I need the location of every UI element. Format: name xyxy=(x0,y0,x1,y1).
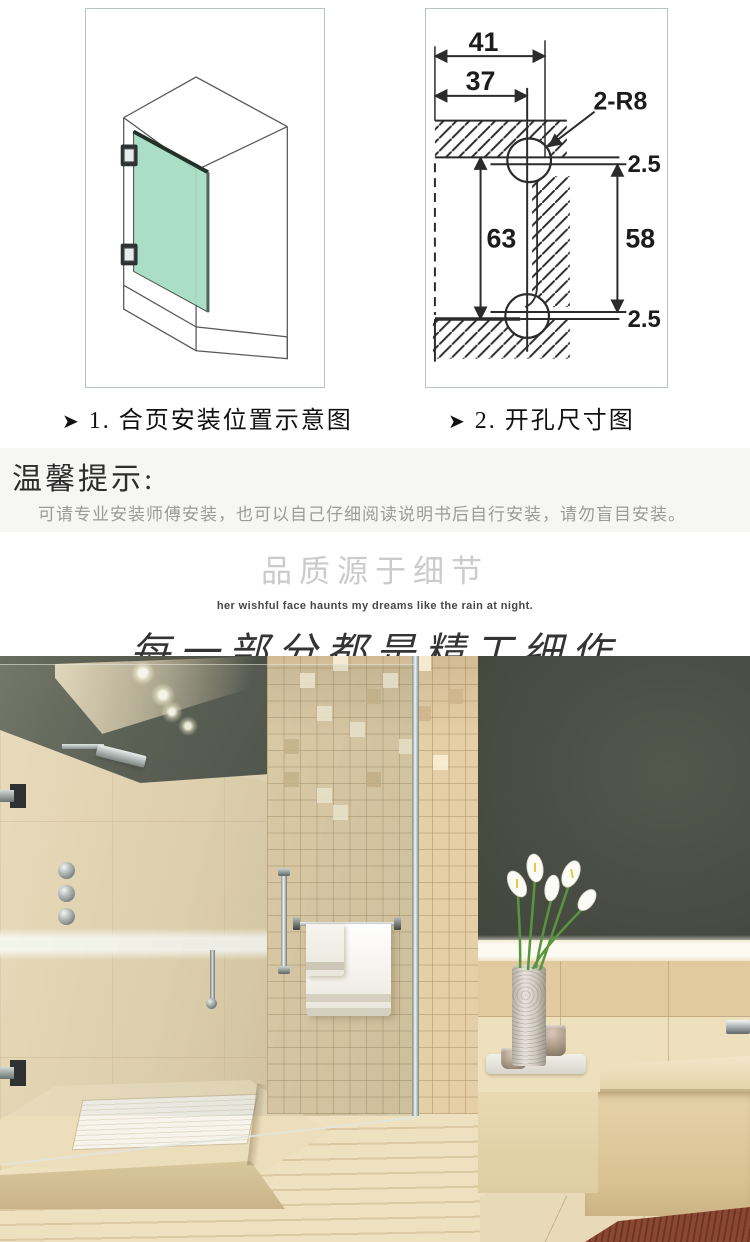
hand-shower-holder xyxy=(210,950,215,1002)
dim-width-outer: 41 xyxy=(469,27,499,57)
hinge-top-icon xyxy=(121,144,138,166)
warm-tips-title: 温馨提示: xyxy=(12,454,155,498)
hole-dimension-diagram-panel: 41 37 2-R8 2.5 63 58 2.5 xyxy=(425,8,668,388)
glass-hatch-bottom xyxy=(433,319,570,359)
bench-front-face xyxy=(478,1092,598,1193)
isometric-shower-box-drawing xyxy=(86,9,324,387)
mosaic-tile-highlight xyxy=(284,772,299,787)
calla-lily-flowers xyxy=(488,846,608,976)
caption-hole-diagram: ➤2. 开孔尺寸图 xyxy=(448,400,635,435)
handle-mount xyxy=(278,868,290,876)
crackle-glaze-vase xyxy=(512,965,546,1066)
dim-offset-top: 2.5 xyxy=(628,151,661,178)
mosaic-tile-highlight xyxy=(366,689,381,704)
hanging-towel-small xyxy=(306,924,344,976)
product-detail-page: 41 37 2-R8 2.5 63 58 2.5 ➤1. 合页安装位置示意图 ➤… xyxy=(0,0,750,1242)
hinge-position-diagram-panel xyxy=(85,8,325,388)
towel-bar-bracket xyxy=(394,917,401,930)
dim-width-inner: 37 xyxy=(466,66,496,96)
arrowhead-icon: ➤ xyxy=(62,409,81,433)
shower-tray-slat-mat xyxy=(72,1094,259,1151)
tile-grout-line xyxy=(668,961,669,1071)
valve-knob xyxy=(58,908,75,925)
shower-valve-controls xyxy=(58,862,80,932)
hole-dimension-drawing: 41 37 2-R8 2.5 63 58 2.5 xyxy=(426,9,667,387)
caption-2-label: 2. 开孔尺寸图 xyxy=(475,408,635,434)
glass-door-panel xyxy=(134,132,208,312)
bath-ledge-front xyxy=(585,1092,750,1216)
valve-knob xyxy=(58,862,75,879)
mosaic-tile-pillar xyxy=(267,656,480,1114)
arrowhead-icon: ➤ xyxy=(448,409,467,433)
glass-panel-edge-strip xyxy=(412,656,419,1116)
warm-tips-banner: 温馨提示: 可请专业安装师傅安装，也可以自己仔细阅读说明书后自行安装，请勿盲目安… xyxy=(0,448,750,532)
dim-height-center: 63 xyxy=(486,224,516,254)
caption-hinge-diagram: ➤1. 合页安装位置示意图 xyxy=(62,400,353,435)
mosaic-tile-highlight xyxy=(333,656,348,671)
handle-mount xyxy=(278,966,290,974)
mosaic-tile-highlight xyxy=(317,788,332,803)
hand-shower-holder-knob xyxy=(206,998,217,1009)
slogan-heading: 品质源于细节 xyxy=(0,546,750,591)
ceiling-spotlights xyxy=(0,656,270,748)
hinge-bottom-icon xyxy=(121,244,138,266)
dim-offset-bottom: 2.5 xyxy=(628,306,661,333)
bathroom-photo xyxy=(0,656,750,1242)
dim-radius-callout: 2-R8 xyxy=(594,89,648,116)
valve-knob xyxy=(58,885,75,902)
slogan-subheading: her wishful face haunts my dreams like t… xyxy=(0,600,750,612)
mosaic-tile-highlight xyxy=(383,673,398,688)
glass-hinge-icon xyxy=(0,790,14,802)
wall-spout xyxy=(726,1020,750,1034)
towel-bar-bracket xyxy=(293,917,300,930)
slogan-block: 品质源于细节 her wishful face haunts my dreams… xyxy=(0,532,750,656)
caption-1-label: 1. 合页安装位置示意图 xyxy=(89,408,353,434)
mosaic-tile-highlight xyxy=(448,689,463,704)
glass-door-handle xyxy=(281,874,287,968)
glass-hinge-icon xyxy=(0,1067,14,1079)
mosaic-tile-highlight xyxy=(317,706,332,721)
warm-tips-body: 可请专业安装师傅安装，也可以自己仔细阅读说明书后自行安装，请勿盲目安装。 xyxy=(38,500,686,525)
mosaic-tile-highlight xyxy=(333,805,348,820)
mosaic-tile-highlight xyxy=(366,772,381,787)
mosaic-tile-highlight xyxy=(284,739,299,754)
backlit-niche-left xyxy=(0,928,268,960)
mosaic-tile-highlight xyxy=(350,722,365,737)
mosaic-tile-highlight xyxy=(300,673,315,688)
mosaic-tile-highlight xyxy=(433,755,448,770)
dim-height-side: 58 xyxy=(625,224,655,254)
